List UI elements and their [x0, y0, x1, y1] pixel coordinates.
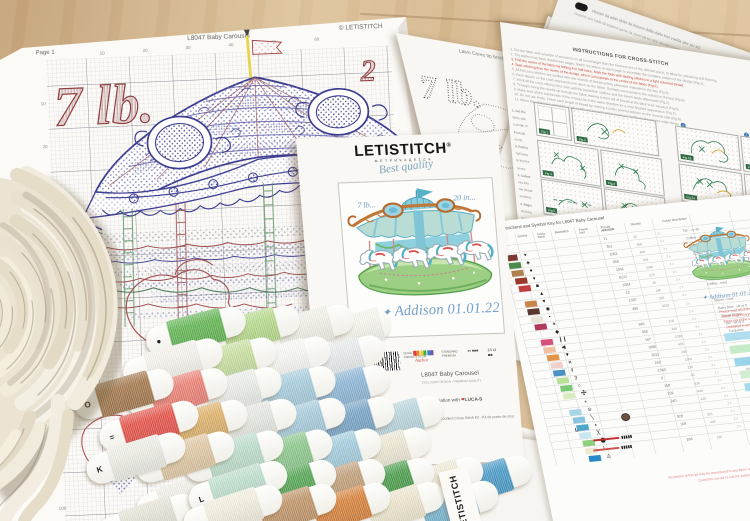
svg-text:60: 60: [314, 37, 320, 42]
svg-text:30: 30: [185, 45, 191, 50]
svg-text:40: 40: [228, 42, 234, 47]
svg-text:20: 20: [142, 48, 148, 53]
svg-text:10: 10: [41, 101, 47, 106]
svg-text:2: 2: [359, 54, 376, 88]
svg-text:7 lb.: 7 lb.: [53, 73, 155, 139]
svg-text:Page 1: Page 1: [36, 50, 56, 57]
svg-text:10: 10: [100, 51, 106, 56]
